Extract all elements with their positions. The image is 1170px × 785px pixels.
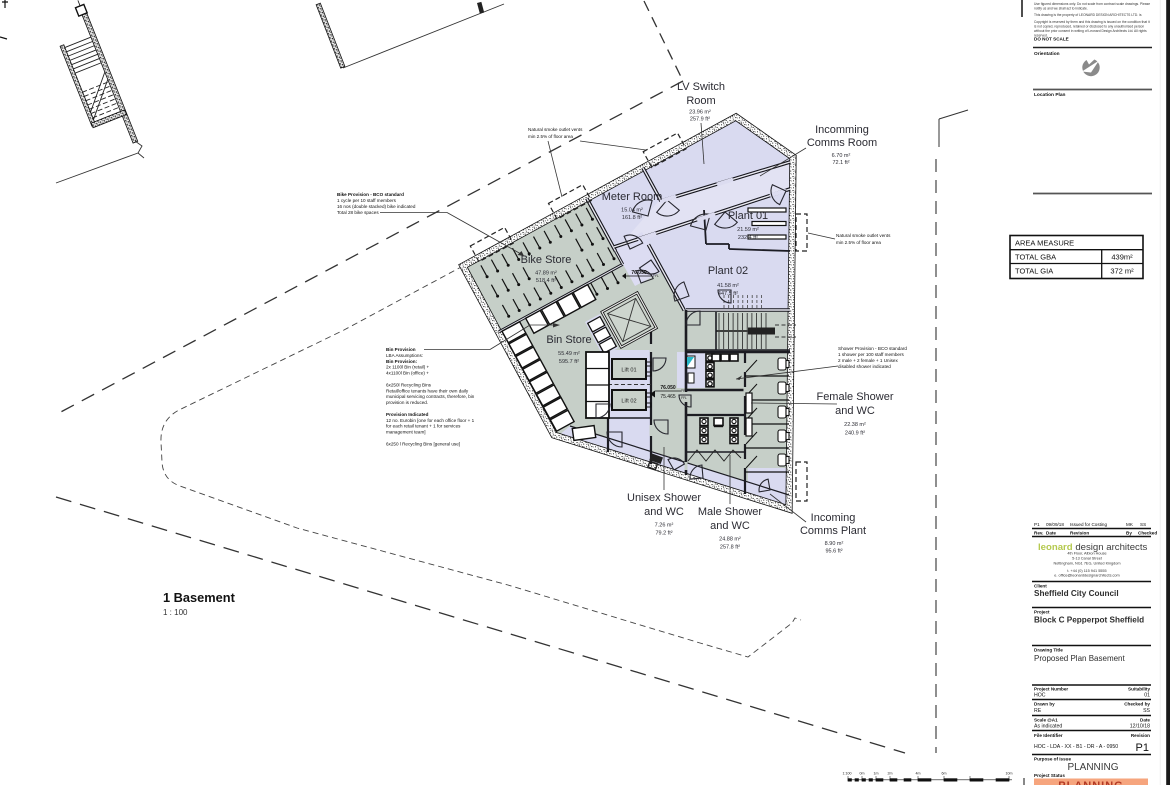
svg-text:AREA MEASURE: AREA MEASURE [1015,239,1074,248]
svg-text:2m: 2m [888,772,893,776]
svg-text:Project Number: Project Number [1034,687,1068,692]
svg-text:e. office@leonarddesignarchite: e. office@leonarddesignarchitects.com [1054,574,1119,578]
svg-text:Issued for Costing: Issued for Costing [1070,522,1107,527]
svg-text:6x250l Recycling Bins: 6x250l Recycling Bins [386,382,432,387]
svg-text:without the prior consent in w: without the prior consent in writing of … [1034,29,1147,33]
svg-text:Unisex Shower: Unisex Shower [627,492,701,504]
svg-text:Bike Store: Bike Store [521,254,572,266]
svg-text:Comms Room: Comms Room [807,137,877,149]
svg-text:Drawing Title: Drawing Title [1034,648,1063,653]
svg-text:6.70 m²: 6.70 m² [832,153,851,159]
svg-text:09/09/18: 09/09/18 [1046,522,1064,527]
svg-text:447.5 ft²: 447.5 ft² [718,291,738,297]
svg-text:Scale @A1: Scale @A1 [1034,718,1058,723]
svg-text:257.8 ft²: 257.8 ft² [720,545,740,551]
svg-text:Bin Provision:: Bin Provision: [386,359,418,364]
svg-text:75.465: 75.465 [660,394,676,400]
svg-text:Revision: Revision [1070,531,1089,536]
svg-text:24.88 m²: 24.88 m² [719,537,741,543]
svg-text:1:100: 1:100 [843,772,852,776]
svg-text:Meter Room: Meter Room [602,191,663,203]
svg-text:12/10/18: 12/10/18 [1130,724,1150,730]
svg-text:1 : 100: 1 : 100 [163,608,188,617]
svg-text:Male Shower: Male Shower [698,506,763,518]
svg-text:notify us and we shall act to: notify us and we shall act to indicate. [1034,7,1088,11]
svg-text:Date: Date [1046,531,1056,536]
svg-text:95.6 ft²: 95.6 ft² [825,549,842,555]
svg-text:TOTAL GBA: TOTAL GBA [1015,253,1056,262]
svg-text:55.49 m²: 55.49 m² [558,351,580,357]
svg-text:SS: SS [1140,522,1146,527]
svg-text:Incomming: Incomming [815,124,869,136]
svg-text:Retail/office tenants have the: Retail/office tenants have their own dai… [386,388,469,393]
svg-text:47.89 m²: 47.89 m² [535,271,557,277]
svg-text:and WC: and WC [644,506,684,518]
svg-text:Room: Room [686,95,715,107]
svg-text:Use figured dimensions only. D: Use figured dimensions only. Do not scal… [1034,2,1150,6]
svg-text:Natural smoke outlet vents: Natural smoke outlet vents [528,127,583,132]
svg-text:Date: Date [1140,718,1150,723]
svg-text:Rev.: Rev. [1034,531,1043,536]
svg-text:and WC: and WC [835,405,875,417]
svg-text:Location Plan: Location Plan [1034,92,1066,98]
svg-text:provision is reduced.: provision is reduced. [386,400,428,405]
svg-text:Suitability: Suitability [1128,687,1150,692]
svg-text:16 nos (double stacked) bike i: 16 nos (double stacked) bike indicated [337,204,416,209]
svg-text:Bin Store: Bin Store [546,334,591,346]
svg-text:2x 1100l Bin (retail) +: 2x 1100l Bin (retail) + [386,365,430,370]
svg-text:DO NOT SCALE: DO NOT SCALE [1034,37,1069,42]
svg-text:and WC: and WC [710,520,750,532]
svg-text:257.9 ft²: 257.9 ft² [690,117,710,123]
svg-text:72.1 ft²: 72.1 ft² [832,160,849,166]
svg-text:76.050: 76.050 [660,385,676,391]
svg-text:8.90 m²: 8.90 m² [825,541,844,547]
svg-text:municipal servicing contracts,: municipal servicing contracts, therefore… [386,394,475,399]
svg-text:TOTAL GIA: TOTAL GIA [1015,267,1053,276]
svg-text:disabled shower indicated: disabled shower indicated [838,364,891,369]
svg-text:Checked by: Checked by [1124,702,1150,707]
svg-text:PLANNING: PLANNING [1058,780,1123,785]
svg-text:372 m²: 372 m² [1110,267,1134,276]
svg-text:min 2.5% of floor area: min 2.5% of floor area [528,134,573,139]
svg-text:HOC: HOC [1034,693,1046,699]
svg-text:PLANNING: PLANNING [1067,762,1118,773]
svg-text:Comms Plant: Comms Plant [800,525,866,537]
svg-text:595.7 ft²: 595.7 ft² [559,359,579,365]
svg-text:management team]: management team] [386,430,426,435]
svg-text:79.2 ft²: 79.2 ft² [655,531,672,537]
svg-text:5-13 Canal Street: 5-13 Canal Street [1072,557,1103,561]
svg-text:SS: SS [1143,708,1150,714]
svg-text:t. +44 (0) 115 941 5555: t. +44 (0) 115 941 5555 [1067,569,1106,573]
svg-text:1 cycle per 10 staff members: 1 cycle per 10 staff members [337,198,397,203]
svg-text:Project: Project [1034,610,1050,615]
svg-text:Natural smoke outlet vents: Natural smoke outlet vents [836,233,891,238]
svg-text:LV Switch: LV Switch [677,81,725,93]
svg-text:Checked: Checked [1138,531,1157,536]
svg-text:Purpose of Issue: Purpose of Issue [1034,757,1071,762]
svg-text:Client: Client [1034,584,1047,589]
svg-text:Total 28 bike spaces: Total 28 bike spaces [337,210,379,215]
svg-text:0m: 0m [860,772,865,776]
svg-text:240.9 ft²: 240.9 ft² [845,431,865,437]
svg-text:161.8 ft²: 161.8 ft² [622,215,642,221]
svg-text:6m: 6m [942,772,947,776]
svg-text:is not copied, reproduced, ret: is not copied, reproduced, retained or d… [1034,25,1144,29]
svg-text:22.38 m²: 22.38 m² [844,422,866,428]
svg-text:76.050: 76.050 [631,270,647,276]
svg-text:Provision Indicated: Provision Indicated [386,412,429,417]
svg-text:518.4 ft²: 518.4 ft² [536,278,556,284]
svg-text:439m²: 439m² [1111,253,1133,262]
svg-text:Project Status: Project Status [1034,773,1065,778]
svg-text:min 2.5% of floor area: min 2.5% of floor area [836,240,881,245]
svg-text:Incoming: Incoming [811,512,856,524]
svg-text:FFL: FFL [653,274,659,278]
svg-text:File Identifier: File Identifier [1034,733,1063,738]
svg-text:FFL: FFL [681,396,687,400]
svg-text:Plant 01: Plant 01 [728,210,768,222]
svg-text:Orientation: Orientation [1034,51,1060,57]
svg-text:01: 01 [1144,693,1150,699]
svg-text:RE: RE [1034,708,1042,714]
svg-text:Sheffield City Council: Sheffield City Council [1034,589,1119,598]
svg-text:1 shower per 100 staff members: 1 shower per 100 staff members [838,352,904,357]
svg-text:12 no. Eurobin [one for each o: 12 no. Eurobin [one for each office floo… [386,418,475,423]
svg-text:Bin Provision: Bin Provision [386,347,416,352]
svg-text:FFL: FFL [681,389,687,393]
svg-text:232.4 ft²: 232.4 ft² [738,235,758,241]
svg-text:4m: 4m [916,772,921,776]
svg-text:Female Shower: Female Shower [816,391,893,403]
svg-text:1m: 1m [874,772,879,776]
svg-text:Proposed Plan Basement: Proposed Plan Basement [1034,654,1126,663]
svg-text:Revision: Revision [1131,733,1150,738]
svg-text:Lift 02: Lift 02 [621,399,636,405]
svg-text:P1: P1 [1034,522,1040,527]
svg-text:MK: MK [1126,522,1134,527]
svg-text:By: By [1126,531,1132,536]
svg-text:4x1100l Bin (office) +: 4x1100l Bin (office) + [386,371,429,376]
svg-text:41.58 m²: 41.58 m² [717,283,739,289]
svg-text:Block C Pepperpot Sheffield: Block C Pepperpot Sheffield [1034,616,1144,625]
svg-text:1 Basement: 1 Basement [163,590,236,605]
svg-text:for each retail tenant + 1 for: for each retail tenant + 1 for services [386,424,461,429]
svg-text:P1: P1 [1136,742,1149,754]
svg-text:6x250 l Recycling Bins [genera: 6x250 l Recycling Bins [general use] [386,441,460,446]
svg-text:Drawn by: Drawn by [1034,702,1055,707]
svg-text:Lift 01: Lift 01 [621,368,636,374]
svg-text:Shower Provision - BCO standar: Shower Provision - BCO standard [838,346,907,351]
svg-text:7.26 m²: 7.26 m² [655,523,674,529]
svg-text:Bike Provision - BCO standard: Bike Provision - BCO standard [337,192,404,197]
svg-text:This drawing is the property o: This drawing is the property of LEONARD … [1034,13,1142,17]
svg-text:2 male + 2 female + 1 Unisex: 2 male + 2 female + 1 Unisex [838,358,898,363]
svg-text:Copyright is reserved by them: Copyright is reserved by them and this d… [1034,20,1150,24]
svg-text:Nottingham, NG1 7EG, United Ki: Nottingham, NG1 7EG, United Kingdom [1053,562,1120,566]
svg-text:Plant 02: Plant 02 [708,265,748,277]
svg-text:10m: 10m [1006,772,1013,776]
svg-text:4th Floor, Albion House: 4th Floor, Albion House [1067,552,1106,556]
svg-text:15.04 m²: 15.04 m² [621,208,643,214]
svg-text:23.96 m²: 23.96 m² [689,110,711,116]
svg-text:LBA Assumptions:: LBA Assumptions: [386,353,423,358]
svg-text:HOC - LDA - XX - B1 - DR - A -: HOC - LDA - XX - B1 - DR - A - 0950 [1034,744,1118,750]
svg-text:21.59 m²: 21.59 m² [737,227,759,233]
svg-text:As indicated: As indicated [1034,724,1062,730]
